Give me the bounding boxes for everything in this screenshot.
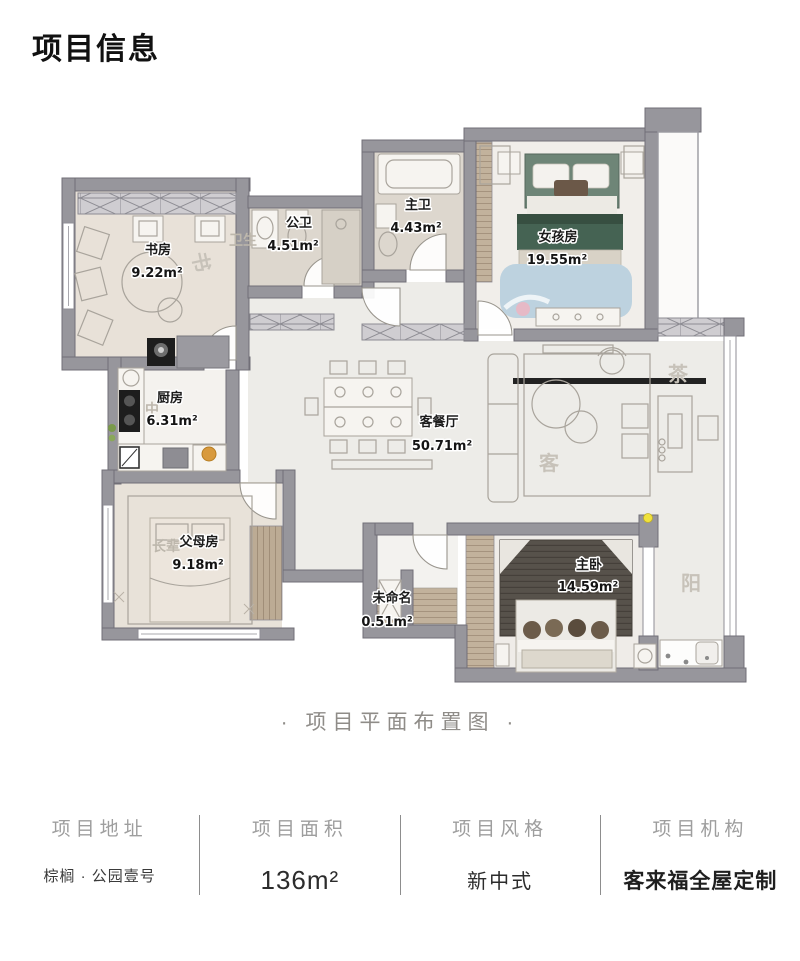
room-area-kitchen: 6.31m²	[146, 414, 197, 429]
room-label-parents: 父母房	[178, 534, 218, 550]
room-area-closet: 0.51m²	[361, 615, 412, 630]
room-label-bath-master: 主卫	[405, 197, 431, 213]
wm-living: 客	[538, 451, 560, 475]
footer-value-address: 棕榈 · 公园壹号	[43, 865, 155, 886]
footer-col-style: 项目风格 新中式	[401, 800, 600, 910]
footer-value-style: 新中式	[467, 865, 533, 894]
footer-col-org: 项目机构 客来福全屋定制	[601, 800, 800, 910]
room-area-bath-master: 4.43m²	[390, 221, 441, 236]
room-label-closet: 未命名	[371, 590, 411, 606]
hall-cabinet-hatch	[250, 314, 334, 330]
footer-col-address: 项目地址 棕榈 · 公园壹号	[0, 800, 199, 910]
footer-label-style: 项目风格	[452, 814, 548, 841]
room-area-study: 9.22m²	[131, 266, 182, 281]
room-label-living: 客餐厅	[419, 414, 458, 430]
footer: 项目地址 棕榈 · 公园壹号 项目面积 136m² 项目风格 新中式 项目机构 …	[0, 800, 800, 910]
room-label-study: 书房	[145, 242, 171, 258]
wm-balcony: 阳	[681, 571, 701, 595]
wm-bath: 卫生	[229, 232, 257, 249]
page-title: 项目信息	[32, 24, 160, 68]
east-window-hatch	[658, 318, 724, 336]
master-wardrobe	[466, 535, 494, 668]
room-area-master: 14.59m²	[558, 580, 618, 595]
parents-wardrobe	[250, 526, 282, 620]
page: 项目信息	[0, 0, 800, 961]
room-label-kitchen: 厨房	[157, 390, 183, 406]
kitchen-cabinet	[177, 336, 229, 368]
room-area-girl: 19.55m²	[527, 253, 587, 268]
accent-dot	[644, 514, 653, 523]
room-label-girl: 女孩房	[538, 229, 577, 245]
floorplan: 书 卫生 中 长辈 客 茶 阳 书房 9.22m² 公卫 4.51m² 主卫 4…	[0, 78, 800, 698]
washer	[696, 642, 718, 664]
room-label-bath-public: 公卫	[286, 216, 312, 231]
shower	[322, 210, 360, 284]
room-area-parents: 9.18m²	[172, 558, 223, 573]
floorplan-svg: 书 卫生 中 长辈 客 茶 阳 书房 9.22m² 公卫 4.51m² 主卫 4…	[0, 78, 800, 698]
wm-parents: 长辈	[152, 538, 180, 555]
footer-value-org: 客来福全屋定制	[623, 865, 777, 895]
wm-tea: 茶	[668, 362, 689, 386]
duct-shaft	[658, 132, 698, 320]
microwave	[163, 448, 188, 468]
footer-col-area: 项目面积 136m²	[200, 800, 399, 910]
entry-shoe-cabinet-hatch	[362, 324, 464, 340]
footer-label-area: 项目面积	[252, 814, 348, 841]
plan-caption: · 项目平面布置图 ·	[0, 706, 800, 736]
balcony-items	[660, 640, 722, 666]
footer-label-address: 项目地址	[52, 814, 148, 841]
footer-value-area: 136m²	[261, 865, 340, 896]
room-area-living: 50.71m²	[412, 439, 472, 454]
room-label-master: 主卧	[576, 557, 602, 573]
girl-wardrobe	[476, 142, 492, 282]
room-area-bath-public: 4.51m²	[267, 239, 318, 254]
study-closet-hatch	[78, 193, 236, 214]
footer-label-org: 项目机构	[652, 814, 748, 841]
pot	[202, 447, 216, 461]
